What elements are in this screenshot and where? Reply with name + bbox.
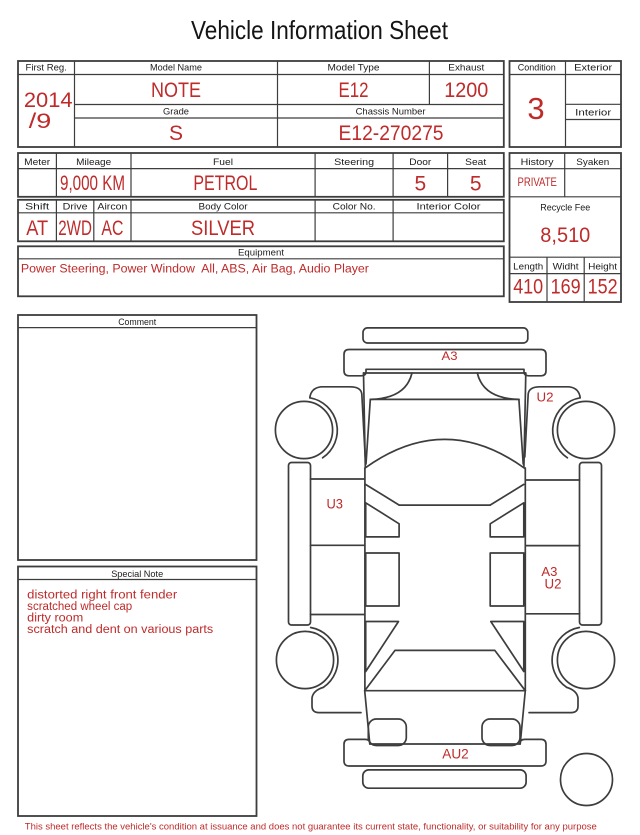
svg-text:Meter: Meter (24, 157, 50, 168)
svg-text:Interior Color: Interior Color (417, 202, 481, 213)
svg-text:Syaken: Syaken (576, 157, 609, 168)
svg-text:PETROL: PETROL (193, 172, 257, 195)
svg-text:/9: /9 (29, 110, 52, 133)
svg-text:Special Note: Special Note (111, 569, 163, 580)
svg-text:Recycle Fee: Recycle Fee (540, 203, 590, 214)
svg-text:Aircon: Aircon (97, 202, 127, 213)
svg-text:U2: U2 (537, 389, 554, 404)
svg-text:Interior: Interior (575, 107, 611, 118)
svg-text:Model Type: Model Type (328, 63, 380, 74)
svg-text:scratched wheel cap: scratched wheel cap (27, 601, 132, 613)
svg-text:Exhaust: Exhaust (448, 63, 484, 74)
svg-text:Seat: Seat (465, 157, 486, 168)
svg-text:AC: AC (101, 217, 123, 240)
svg-text:E12-270275: E12-270275 (339, 122, 444, 145)
svg-text:S: S (169, 122, 183, 145)
svg-text:First Reg.: First Reg. (26, 63, 67, 74)
svg-text:A3: A3 (442, 351, 458, 363)
svg-text:Condition: Condition (518, 63, 556, 74)
svg-text:NOTE: NOTE (151, 79, 201, 102)
svg-text:5: 5 (470, 173, 482, 196)
svg-text:Color No.: Color No. (333, 202, 376, 213)
svg-text:Model Name: Model Name (150, 63, 202, 74)
svg-text:History: History (521, 157, 554, 168)
svg-text:distorted right front fender: distorted right front fender (27, 590, 177, 602)
svg-text:Equipment: Equipment (238, 248, 284, 259)
svg-text:scratch and dent on various pa: scratch and dent on various parts (27, 624, 213, 636)
svg-text:PRIVATE: PRIVATE (518, 177, 558, 189)
svg-text:Drive: Drive (63, 202, 88, 213)
svg-text:U2: U2 (545, 577, 562, 592)
svg-text:dirty room: dirty room (27, 612, 83, 624)
svg-text:AU2: AU2 (442, 746, 469, 762)
svg-text:5: 5 (414, 173, 426, 196)
svg-text:410: 410 (513, 275, 543, 298)
svg-text:Body Color: Body Color (199, 202, 248, 213)
svg-text:Mileage: Mileage (76, 157, 111, 168)
svg-text:This sheet reflects the vehicl: This sheet reflects the vehicle's condit… (25, 822, 597, 832)
svg-text:Shift: Shift (25, 202, 49, 213)
svg-text:152: 152 (588, 275, 618, 298)
svg-text:2014: 2014 (24, 89, 73, 112)
svg-text:Steering: Steering (334, 157, 374, 168)
svg-text:9,000 KM: 9,000 KM (60, 172, 125, 195)
svg-text:2WD: 2WD (58, 217, 92, 240)
svg-text:SILVER: SILVER (191, 217, 255, 240)
svg-text:Height: Height (588, 262, 617, 273)
svg-text:Grade: Grade (163, 107, 189, 118)
svg-text:169: 169 (551, 275, 581, 298)
svg-text:Door: Door (409, 157, 431, 168)
svg-text:U3: U3 (326, 496, 343, 512)
svg-text:Comment: Comment (118, 317, 156, 328)
svg-text:Fuel: Fuel (213, 157, 233, 168)
svg-text:Widht: Widht (553, 262, 579, 273)
svg-text:Length: Length (513, 262, 543, 273)
svg-text:Exterior: Exterior (574, 63, 612, 74)
svg-text:AT: AT (26, 217, 48, 240)
svg-text:Chassis Number: Chassis Number (356, 107, 426, 118)
svg-text:3: 3 (527, 91, 544, 126)
svg-text:1200: 1200 (444, 79, 488, 102)
svg-text:8,510: 8,510 (540, 224, 590, 247)
svg-text:Power Steering, Power Window: Power Steering, Power Window All, ABS, A… (21, 264, 369, 276)
svg-text:Vehicle Information Sheet: Vehicle Information Sheet (191, 15, 449, 45)
svg-text:E12: E12 (339, 79, 369, 102)
